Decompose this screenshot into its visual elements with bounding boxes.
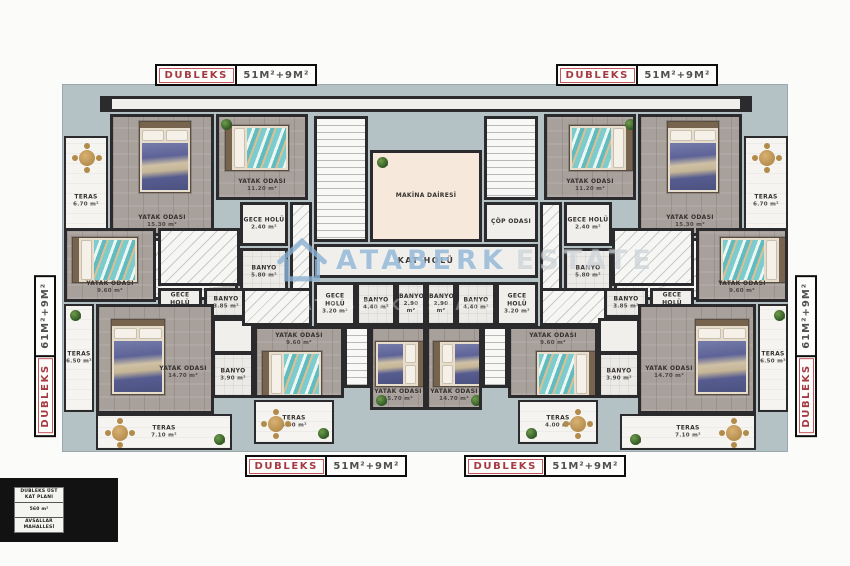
- terrace-left-bottom: TERAS7.10 m²: [96, 414, 232, 450]
- patio-table-icon: [726, 425, 742, 441]
- bedroom-left-small: YATAK ODASI9.60 m²: [64, 228, 156, 302]
- room-label: YATAK ODASI: [641, 214, 739, 222]
- bedroom-center-right-large: YATAK ODASI14.70 m²: [426, 326, 482, 410]
- room-label: BANYO: [459, 297, 493, 305]
- plant-icon: [377, 157, 388, 168]
- bedroom-top-left-small: YATAK ODASI11.20 m²: [216, 114, 308, 200]
- room-label: BANYO: [607, 296, 645, 304]
- terrace-left-side: TERAS6.50 m²: [64, 304, 94, 412]
- room-label: YATAK ODASI: [257, 332, 341, 340]
- bathroom-left-2: BANYO3.90 m²: [212, 352, 254, 398]
- garbage-room: ÇÖP ODASI: [484, 202, 538, 242]
- unit-area: 51M²+9M²: [544, 457, 624, 475]
- plant-icon: [630, 434, 641, 445]
- terrace-center-right: TERAS4.00 m²: [518, 400, 598, 444]
- room-label: TERAS: [760, 351, 786, 359]
- unit-area: 61M²+9M²: [797, 277, 815, 357]
- bedroom-top-right-small: YATAK ODASI11.20 m²: [544, 114, 636, 200]
- terrace-right-side: TERAS6.50 m²: [758, 304, 788, 412]
- room-label: YATAK ODASI: [547, 178, 633, 186]
- room-label: YATAK ODASI: [643, 365, 695, 373]
- double-bed-blue-icon: [667, 121, 719, 193]
- room-label: GECE HOLÜ: [243, 217, 285, 225]
- duplex-stair-right: [612, 228, 694, 286]
- room-label: GECE HOLÜ: [317, 293, 353, 309]
- plant-icon: [774, 310, 785, 321]
- unit-area: 61M²+9M²: [36, 277, 54, 357]
- room-label: BANYO: [243, 265, 285, 273]
- bathroom-center-right-2: BANYO2.90 m²: [426, 282, 456, 326]
- roof-detail: [100, 96, 112, 112]
- unit-type: DUBLEKS: [249, 459, 324, 474]
- night-hall-center-left: GECE HOLÜ3.20 m²: [314, 282, 356, 326]
- room-label: YATAK ODASI: [219, 178, 305, 186]
- terrace-right-bottom: TERAS7.10 m²: [620, 414, 756, 450]
- unit-type: DUBLEKS: [799, 358, 814, 433]
- room-label: GECE HOLÜ: [567, 217, 609, 225]
- double-bed-blue-icon: [139, 121, 191, 193]
- room-label: BANYO: [399, 293, 423, 301]
- room-label: BANYO: [567, 265, 609, 273]
- bathroom-center-right-1: BANYO4.40 m²: [456, 282, 496, 326]
- bedroom-center-left-small: YATAK ODASI9.60 m²: [254, 326, 344, 398]
- room-label: BANYO: [601, 368, 637, 376]
- single-bed-teal-icon: [225, 125, 289, 171]
- unit-type: DUBLEKS: [468, 459, 543, 474]
- double-bed-blue-icon: [433, 341, 482, 387]
- plant-icon: [221, 119, 232, 130]
- stairwell-right: [484, 116, 538, 200]
- plant-icon: [471, 395, 482, 406]
- single-bed-teal-icon: [262, 351, 322, 397]
- double-bed-blue-icon: [111, 319, 165, 395]
- unit-label-right-side: DUBLEKS 61M²+9M²: [795, 275, 817, 437]
- room-label: TERAS: [66, 194, 106, 202]
- bathroom-right-2: BANYO3.90 m²: [598, 352, 640, 398]
- plant-icon: [526, 428, 537, 439]
- duplex-stair-center-left: [242, 288, 312, 326]
- stairwell-left: [314, 116, 368, 242]
- plant-icon: [214, 434, 225, 445]
- hall-right: [598, 318, 640, 354]
- night-hall-center-right: GECE HOLÜ3.20 m²: [496, 282, 538, 326]
- unit-area: 51M²+9M²: [636, 66, 716, 84]
- title-block: DUBLEKS ÜSTKAT PLANI 560 m² AVSALLARMAHA…: [14, 487, 64, 533]
- title-block-background: DUBLEKS ÜSTKAT PLANI 560 m² AVSALLARMAHA…: [0, 478, 118, 542]
- patio-table-icon: [268, 416, 284, 432]
- room-label: TERAS: [746, 194, 786, 202]
- room-label: MAKİNA DAİRESİ: [373, 192, 479, 200]
- roof-detail: [740, 96, 752, 112]
- bedroom-left-large: YATAK ODASI14.70 m²: [96, 304, 214, 414]
- room-label: YATAK ODASI: [429, 388, 479, 396]
- unit-label-top-left: DUBLEKS 51M²+9M²: [155, 64, 317, 86]
- unit-type: DUBLEKS: [560, 68, 635, 83]
- bedroom-right-large: YATAK ODASI14.70 m²: [638, 304, 756, 414]
- single-bed-teal-icon: [720, 237, 786, 283]
- double-bed-blue-icon: [695, 319, 749, 395]
- room-label: BANYO: [215, 368, 251, 376]
- bathroom-center-left-2: BANYO2.90 m²: [396, 282, 426, 326]
- unit-label-bottom-right: DUBLEKS 51M²+9M²: [464, 455, 626, 477]
- patio-table-icon: [570, 416, 586, 432]
- plant-icon: [625, 119, 636, 130]
- duplex-stair-top-left: [290, 202, 312, 296]
- patio-table-icon: [112, 425, 128, 441]
- single-bed-teal-icon: [569, 125, 633, 171]
- patio-table-icon: [79, 150, 95, 166]
- plan-title: DUBLEKS ÜSTKAT PLANI: [15, 488, 63, 503]
- bedroom-right-small: YATAK ODASI9.60 m²: [696, 228, 788, 302]
- room-label: BANYO: [207, 296, 245, 304]
- double-bed-blue-icon: [375, 341, 425, 387]
- bedroom-center-right-small: YATAK ODASI9.60 m²: [508, 326, 598, 398]
- machine-room: MAKİNA DAİRESİ: [370, 150, 482, 242]
- bathroom-center-left-1: BANYO4.40 m²: [356, 282, 396, 326]
- stair-center-left: [344, 326, 370, 388]
- night-hall-top-left: GECE HOLÜ2.40 m²: [240, 202, 288, 246]
- room-label: KAT HOLÜ: [317, 256, 535, 266]
- bedroom-top-right-large: YATAK ODASI15.30 m²: [638, 114, 742, 236]
- room-label: YATAK ODASI: [113, 214, 211, 222]
- terrace-center-left: TERAS4.00 m²: [254, 400, 334, 444]
- unit-label-top-right: DUBLEKS 51M²+9M²: [556, 64, 718, 86]
- unit-type: DUBLEKS: [38, 358, 53, 433]
- single-bed-teal-icon: [72, 237, 138, 283]
- party-wall: [424, 282, 428, 410]
- bedroom-top-left-large: YATAK ODASI15.30 m²: [110, 114, 214, 236]
- patio-table-icon: [759, 150, 775, 166]
- room-label: GECE HOLÜ: [499, 293, 535, 309]
- unit-area: 51M²+9M²: [235, 66, 315, 84]
- unit-type: DUBLEKS: [159, 68, 234, 83]
- plant-icon: [318, 428, 329, 439]
- bedroom-center-left-large: YATAK ODASI15.70 m²: [370, 326, 426, 410]
- floor-plan-page: TERAS6.70 m² YATAK ODASI15.30 m² YATAK O…: [0, 0, 850, 566]
- plan-location: AVSALLARMAHALLESİ: [15, 518, 63, 532]
- room-label: YATAK ODASI: [511, 332, 595, 340]
- stair-center-right: [482, 326, 508, 388]
- plant-icon: [70, 310, 81, 321]
- room-label: BANYO: [359, 297, 393, 305]
- floor-hall: KAT HOLÜ: [314, 244, 538, 278]
- single-bed-teal-icon: [536, 351, 596, 397]
- unit-label-bottom-left: DUBLEKS 51M²+9M²: [245, 455, 407, 477]
- unit-label-left-side: DUBLEKS 61M²+9M²: [34, 275, 56, 437]
- plan-area: 560 m²: [15, 503, 63, 518]
- night-hall-top-right: GECE HOLÜ2.40 m²: [564, 202, 612, 246]
- room-label: TERAS: [66, 351, 92, 359]
- roof-band: [100, 96, 752, 112]
- duplex-stair-top-right: [540, 202, 562, 296]
- duplex-stair-left: [158, 228, 240, 286]
- unit-area: 51M²+9M²: [325, 457, 405, 475]
- plant-icon: [376, 395, 387, 406]
- room-label: ÇÖP ODASI: [487, 218, 535, 226]
- room-label: BANYO: [429, 293, 453, 301]
